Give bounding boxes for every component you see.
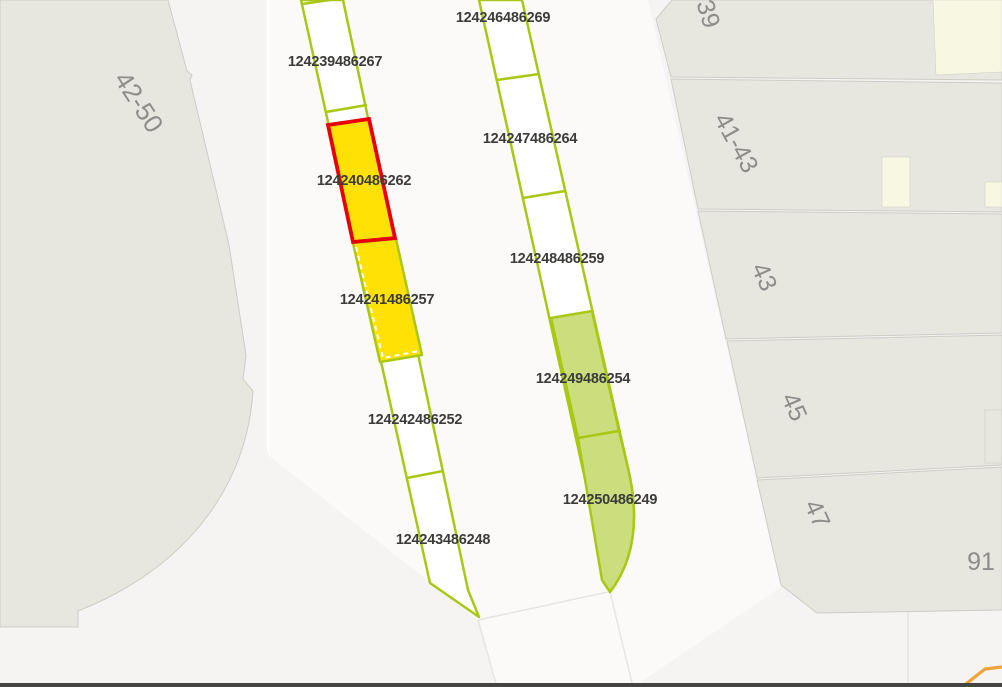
building-label-91: 91 — [967, 548, 995, 576]
bay-label-124246486269: 124246486269 — [456, 10, 551, 26]
building-43 — [698, 211, 1002, 339]
building-47 — [757, 467, 1002, 613]
map-canvas[interactable]: 1242464862691242394862671242474862641242… — [0, 0, 1002, 687]
courtyard-39 — [933, 0, 1002, 75]
courtyard-41-43-b — [985, 182, 1002, 207]
bottom-bar — [0, 683, 1002, 687]
bay-label-124239486267: 124239486267 — [288, 54, 383, 70]
bay-label-124249486254: 124249486254 — [536, 371, 631, 387]
bay-label-124240486262: 124240486262 — [317, 173, 412, 189]
building-41-43 — [671, 79, 1002, 212]
bay-label-124250486249: 124250486249 — [563, 492, 658, 508]
bay-label-124241486257: 124241486257 — [340, 292, 435, 308]
bay-label-124243486248: 124243486248 — [396, 532, 491, 548]
courtyard-41-43-a — [882, 157, 910, 207]
building-45 — [727, 335, 1002, 478]
map-svg[interactable]: 1242464862691242394862671242474862641242… — [0, 0, 1002, 687]
bay-label-124248486259: 124248486259 — [510, 251, 605, 267]
bay-label-124242486252: 124242486252 — [368, 412, 463, 428]
bay-label-124247486264: 124247486264 — [483, 131, 578, 147]
